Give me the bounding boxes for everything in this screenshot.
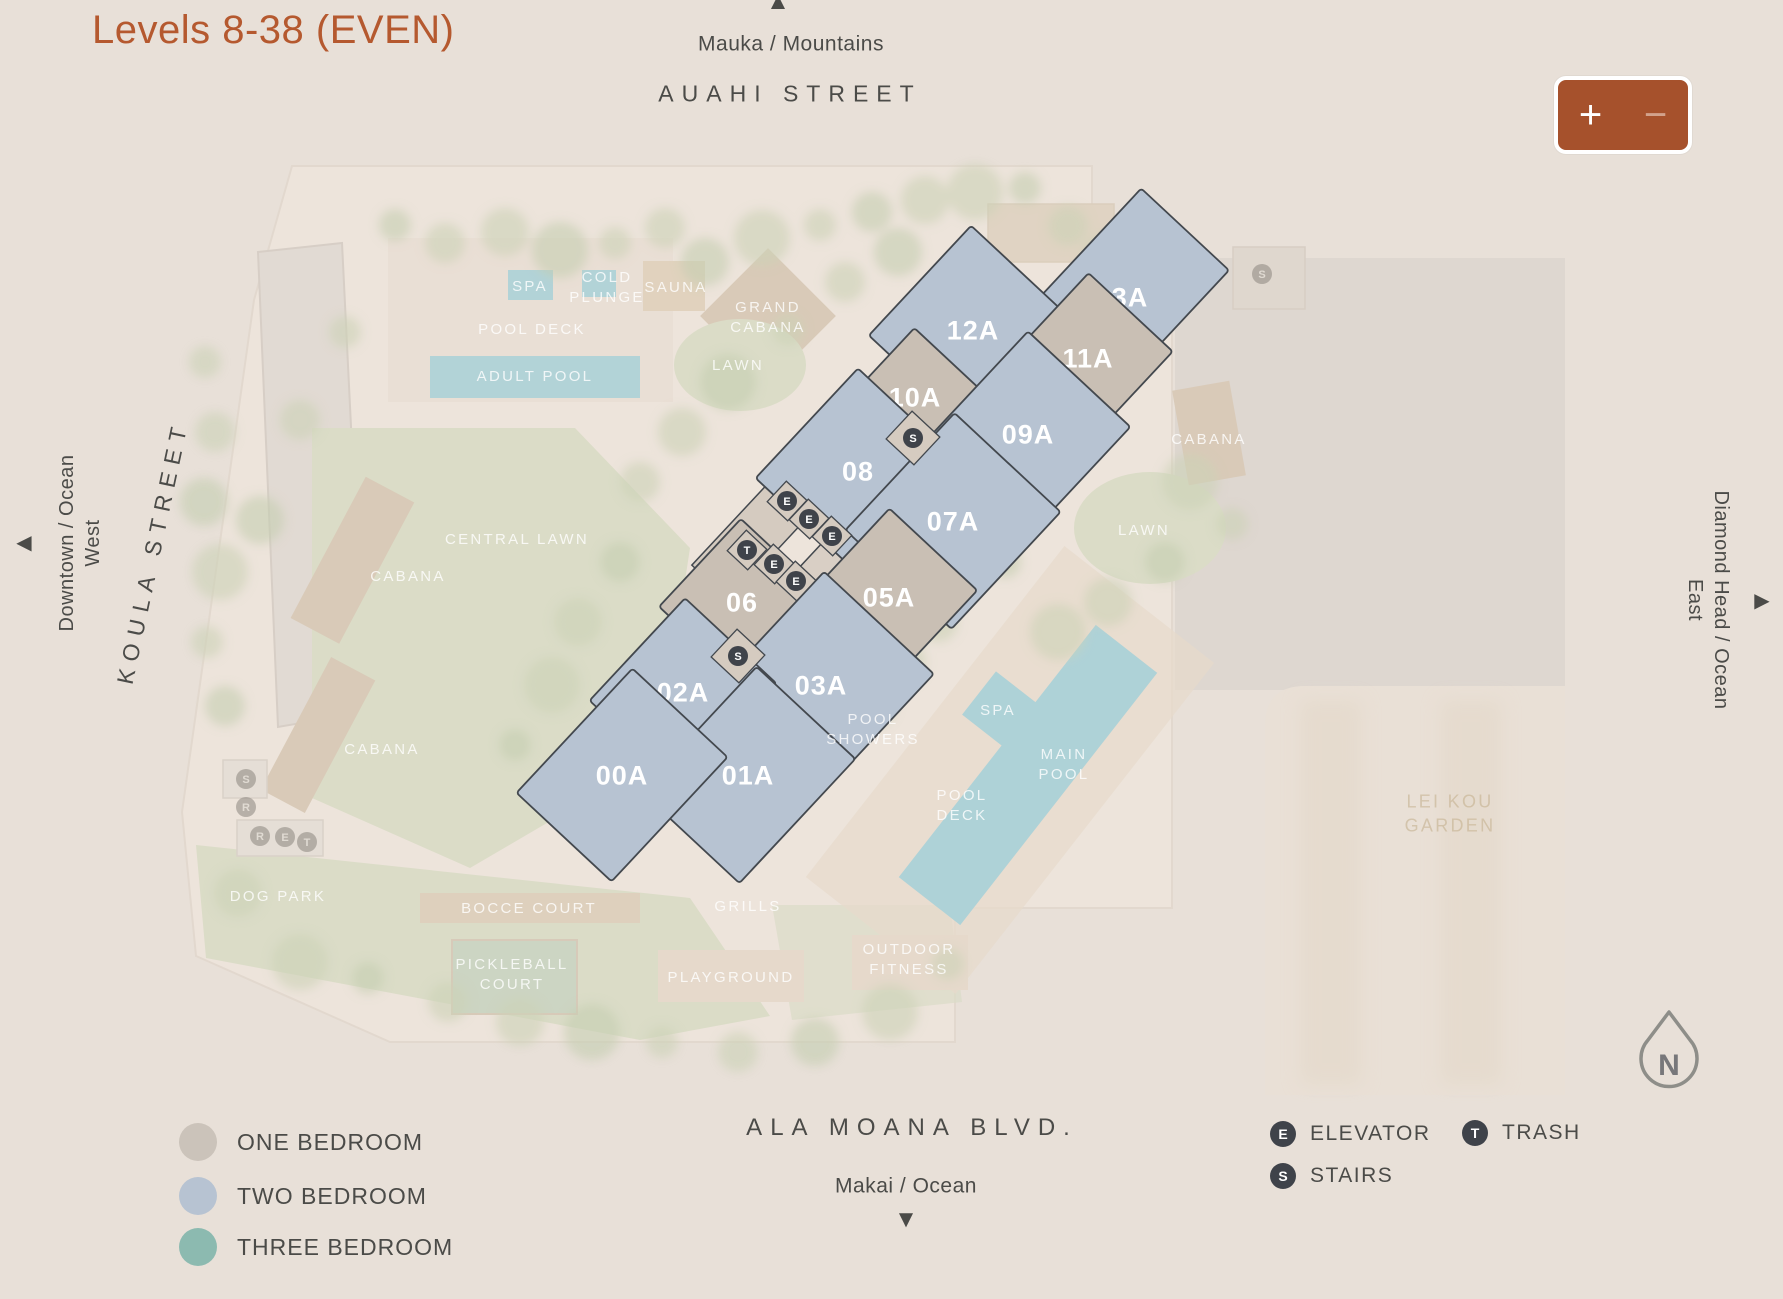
svg-text:E: E <box>281 832 288 844</box>
svg-text:S: S <box>1258 269 1265 281</box>
unit-label: 07A <box>927 507 980 537</box>
zoom-controls: + − <box>1554 76 1692 154</box>
unit-label: 00A <box>596 761 649 791</box>
makai-arrow-icon: ▼ <box>894 1208 918 1232</box>
two-bedroom-label: TWO BEDROOM <box>237 1183 427 1210</box>
stairs-icon: S <box>1270 1163 1296 1189</box>
diamond-head-ocean-east-label: Diamond Head / Ocean East <box>1682 475 1734 725</box>
one-bedroom-label: ONE BEDROOM <box>237 1129 423 1156</box>
auahi-street-label: AUAHI STREET <box>658 81 921 108</box>
unit-label: 03A <box>795 671 848 701</box>
unit-label: 01A <box>722 761 775 791</box>
svg-text:E: E <box>828 531 835 543</box>
compass: N <box>1641 1012 1697 1087</box>
svg-text:R: R <box>242 802 250 814</box>
ala-moana-blvd-label: ALA MOANA BLVD. <box>746 1114 1078 1142</box>
legend-one-bedroom: ONE BEDROOM <box>179 1123 423 1161</box>
page-title: Levels 8-38 (EVEN) <box>92 8 454 53</box>
service-marker-icon: R <box>250 826 270 846</box>
mauka-arrow-icon: ▲ <box>766 0 790 14</box>
svg-text:T: T <box>744 545 751 557</box>
legend-elevator: E ELEVATOR <box>1270 1121 1431 1147</box>
svg-text:S: S <box>909 433 916 445</box>
service-marker-icon: R <box>236 797 256 817</box>
stairs-marker-icon: S <box>1252 264 1272 284</box>
svg-text:E: E <box>783 496 790 508</box>
zoom-in-button[interactable]: + <box>1569 95 1612 135</box>
elevator-label: ELEVATOR <box>1310 1122 1431 1146</box>
site-map: 13A12A11A10A09A0807A0605A03A02A01A00A SE… <box>0 0 1783 1299</box>
elevator-marker-icon: E <box>275 827 295 847</box>
legend-stairs: S STAIRS <box>1270 1163 1393 1189</box>
unit-label: 12A <box>947 316 1000 346</box>
svg-text:T: T <box>304 837 311 849</box>
svg-text:E: E <box>792 576 799 588</box>
east-arrow-icon: ▶ <box>1754 591 1769 611</box>
stairs-label: STAIRS <box>1310 1164 1393 1188</box>
svg-text:S: S <box>734 651 741 663</box>
trash-label: TRASH <box>1502 1121 1581 1145</box>
downtown-ocean-west-label: Downtown / Ocean West <box>54 428 106 658</box>
elevator-icon: E <box>1270 1121 1296 1147</box>
unit-label: 05A <box>863 583 916 613</box>
zoom-out-button[interactable]: − <box>1634 95 1677 135</box>
makai-label: Makai / Ocean <box>835 1172 977 1199</box>
unit-label: 09A <box>1002 420 1055 450</box>
svg-text:S: S <box>242 774 249 786</box>
mauka-label: Mauka / Mountains <box>698 30 884 57</box>
unit-label: 11A <box>1062 344 1113 374</box>
trash-marker-icon: T <box>297 832 317 852</box>
west-arrow-icon: ◀ <box>16 533 31 553</box>
floorplan-page: 13A12A11A10A09A0807A0605A03A02A01A00A SE… <box>0 0 1783 1299</box>
one-bedroom-swatch <box>179 1123 217 1161</box>
trash-icon: T <box>1462 1120 1488 1146</box>
compass-n-label: N <box>1658 1049 1680 1082</box>
legend-trash: T TRASH <box>1462 1120 1581 1146</box>
svg-text:R: R <box>256 831 264 843</box>
three-bedroom-label: THREE BEDROOM <box>237 1234 453 1261</box>
unit-label: 08 <box>842 457 874 487</box>
two-bedroom-swatch <box>179 1177 217 1215</box>
stairs-marker-icon: S <box>236 769 256 789</box>
svg-text:E: E <box>770 559 777 571</box>
legend-two-bedroom: TWO BEDROOM <box>179 1177 427 1215</box>
legend-three-bedroom: THREE BEDROOM <box>179 1228 453 1266</box>
three-bedroom-swatch <box>179 1228 217 1266</box>
unit-label: 06 <box>726 588 758 618</box>
svg-text:E: E <box>805 514 812 526</box>
